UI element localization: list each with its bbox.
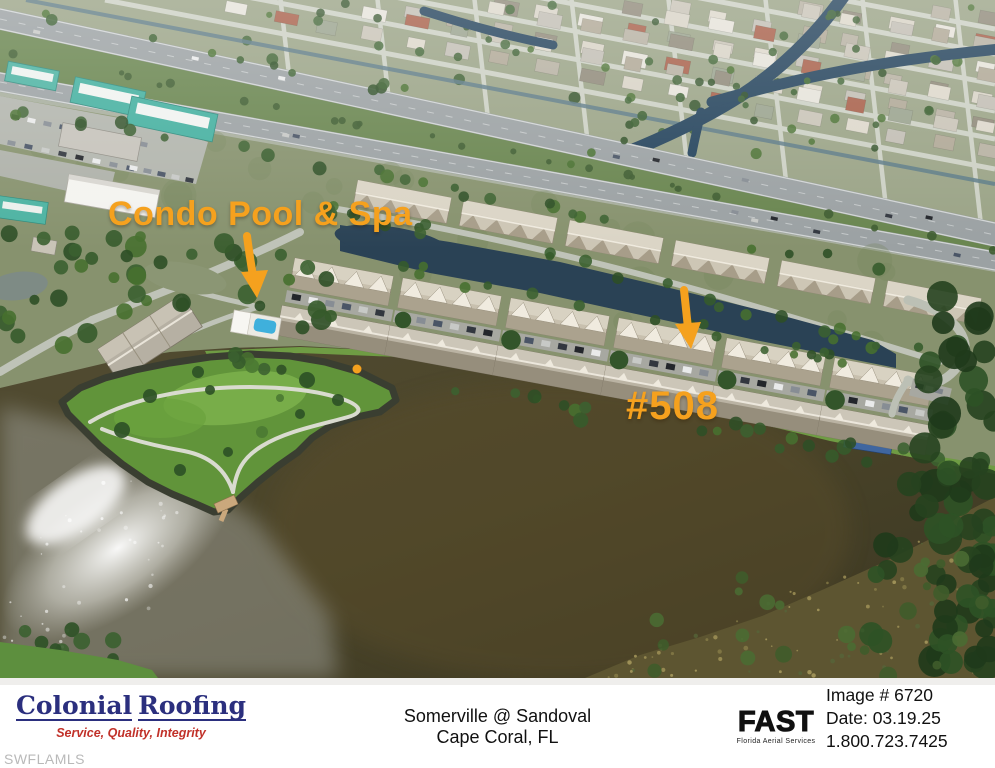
fast-logo-caption: Florida Aerial Services: [733, 738, 819, 745]
footer-bar: Colonial Roofing Service, Quality, Integ…: [0, 678, 995, 768]
colonial-roofing-logo: Colonial Roofing Service, Quality, Integ…: [36, 688, 226, 740]
mls-watermark: SWFLAMLS: [4, 751, 85, 767]
property-location: Somerville @ Sandoval Cape Coral, FL: [404, 706, 591, 748]
clubhouse: [230, 310, 251, 335]
fast-aerial-logo: FAST Florida Aerial Services: [733, 708, 819, 745]
orange-dot-marker: [353, 365, 362, 374]
property-name: Somerville @ Sandoval: [404, 706, 591, 727]
unit-508-label: #508: [626, 386, 719, 426]
unit-508-arrow: [684, 290, 688, 328]
image-date: Date: 03.19.25: [826, 707, 948, 730]
phone-number: 1.800.723.7425: [826, 730, 948, 753]
listing-photo-page: Condo Pool & Spa #508 Colonial Roofing S…: [0, 0, 995, 768]
property-city: Cape Coral, FL: [404, 727, 591, 748]
image-meta: Image # 6720 Date: 03.19.25 1.800.723.74…: [826, 684, 948, 753]
fast-logo-text: FAST: [733, 708, 819, 737]
image-number: Image # 6720: [826, 684, 948, 707]
aerial-photo: [0, 0, 995, 678]
roofing-word: Roofing: [138, 693, 246, 721]
pool-spa-label: Condo Pool & Spa: [108, 197, 413, 231]
colonial-word: Colonial: [16, 693, 132, 721]
colonial-tagline: Service, Quality, Integrity: [36, 726, 226, 740]
